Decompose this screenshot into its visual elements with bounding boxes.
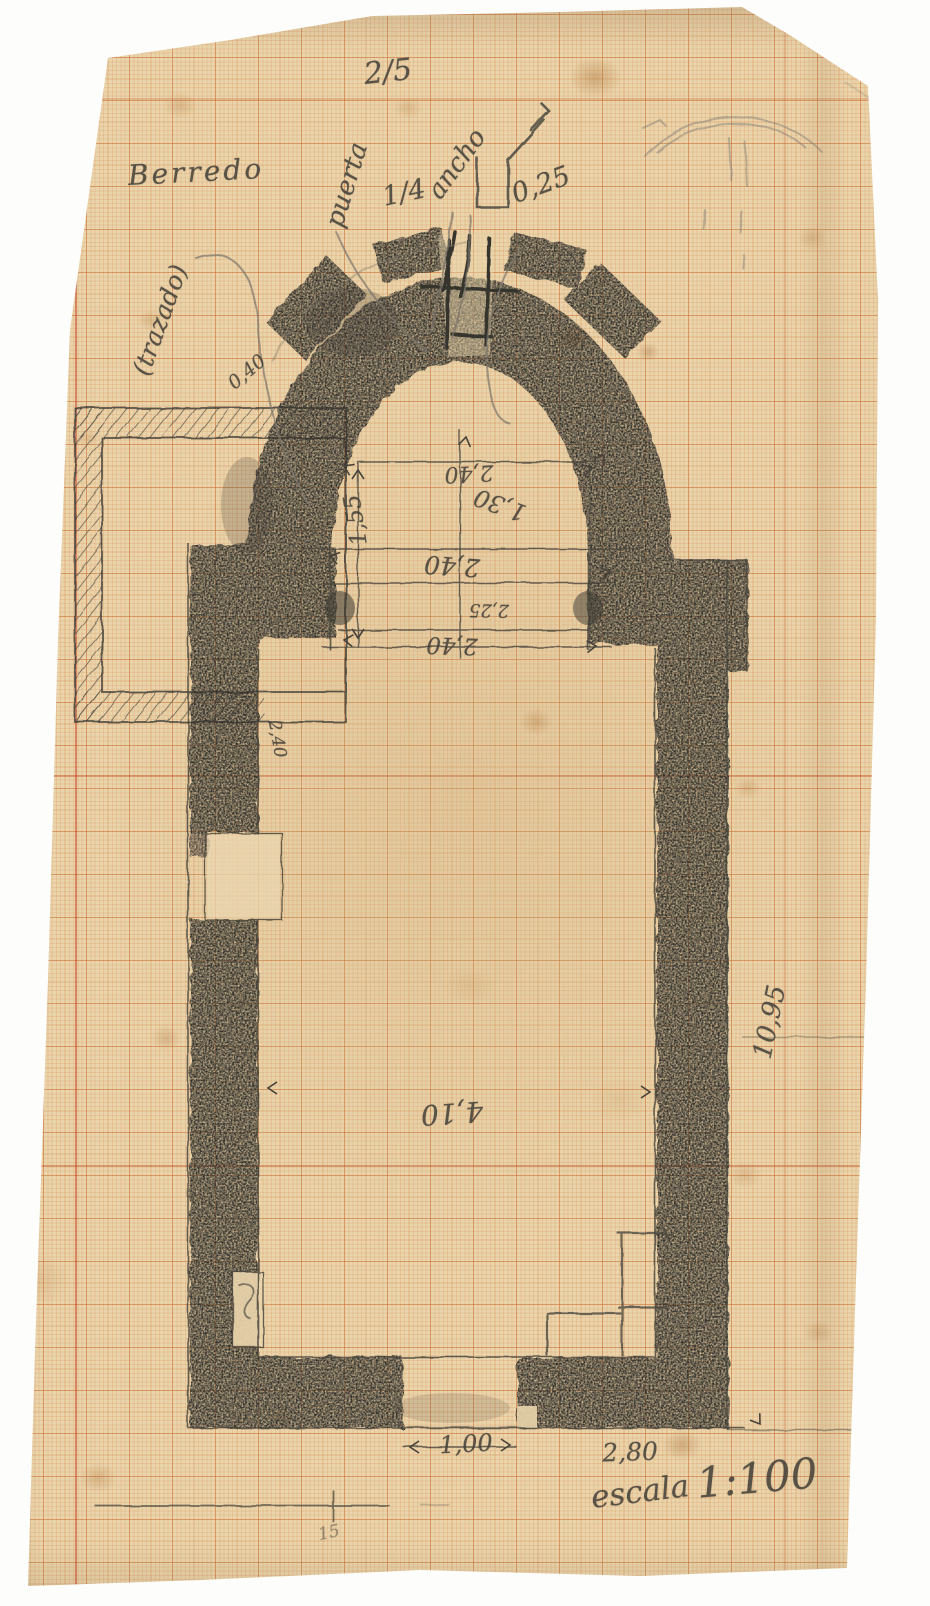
graph-paper-sheet: 2/5 Berredo puerta 1/4 ancho 0,25 (traza… xyxy=(0,0,930,1606)
edge-cross-mark: + xyxy=(61,95,74,113)
scan-background: 2/5 Berredo puerta 1/4 ancho 0,25 (traza… xyxy=(0,0,930,1606)
edge-letter-a: a xyxy=(53,80,72,90)
paper-edge-vignette xyxy=(0,0,930,1606)
